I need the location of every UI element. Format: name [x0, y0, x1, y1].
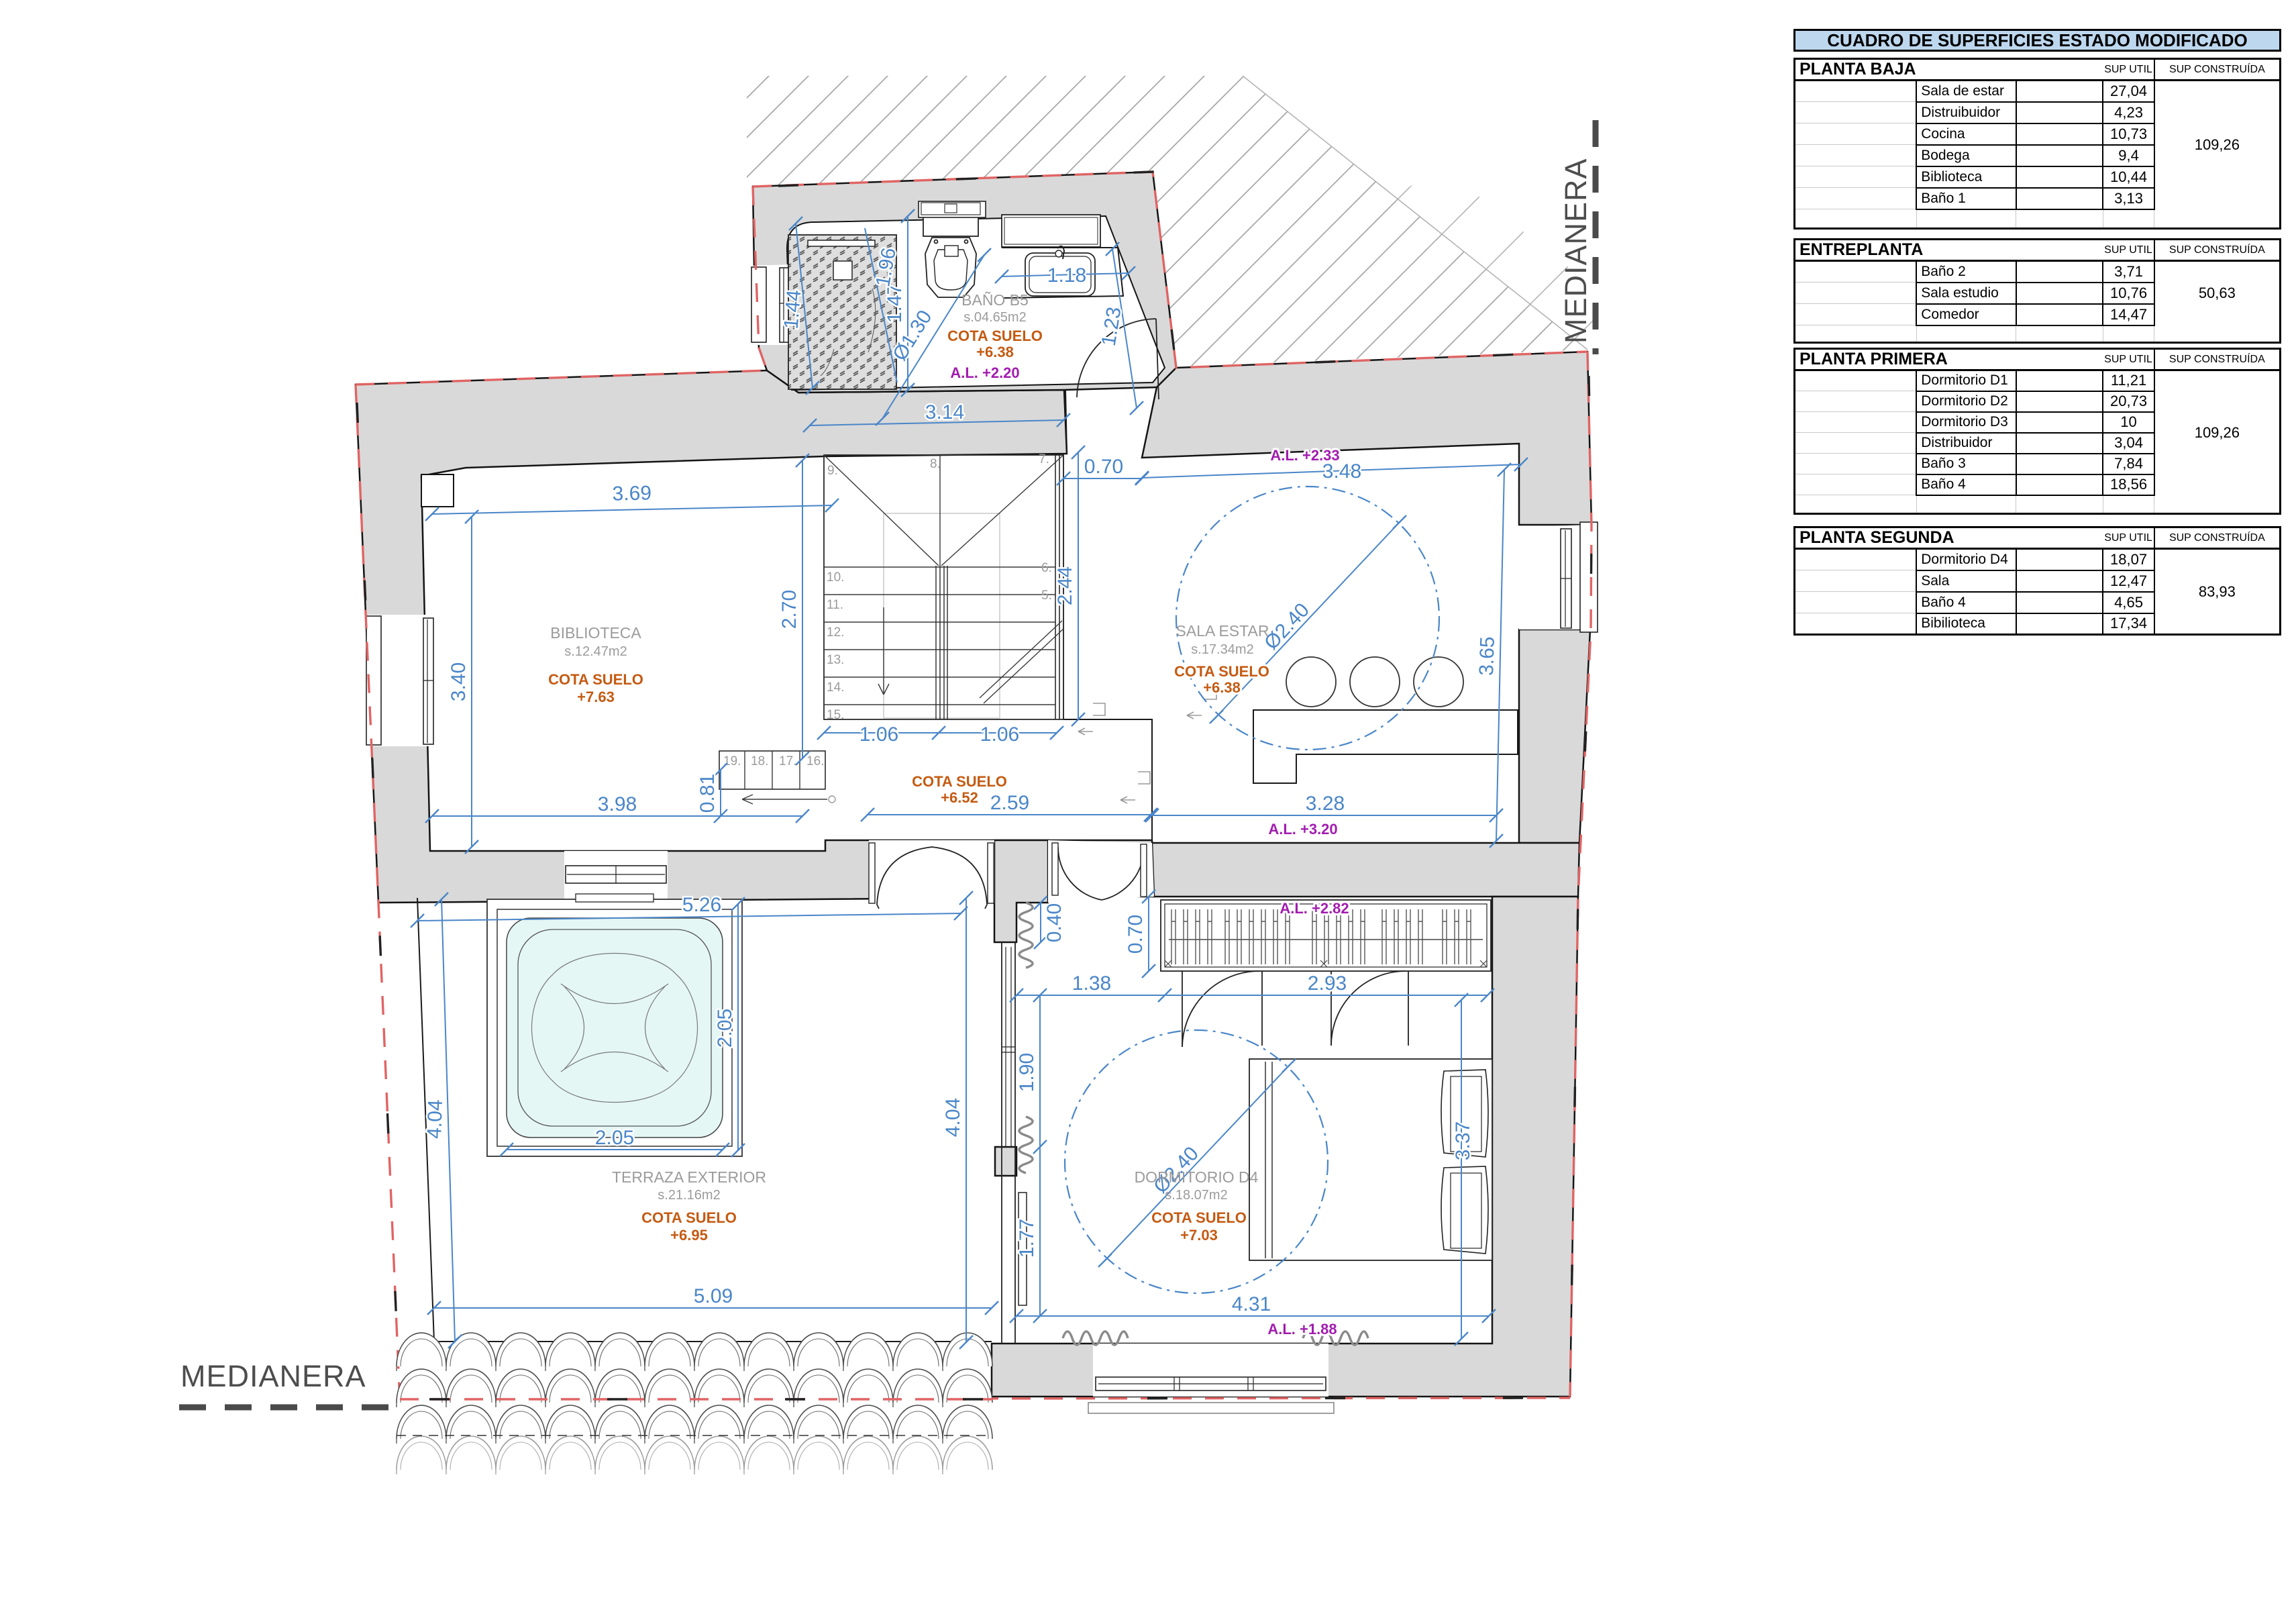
- svg-text:3.37: 3.37: [1452, 1121, 1474, 1160]
- svg-text:0.70: 0.70: [1125, 915, 1147, 954]
- svg-text:2.44: 2.44: [1054, 566, 1076, 605]
- svg-text:s.17.34m2: s.17.34m2: [1191, 642, 1253, 657]
- svg-text:1.47: 1.47: [884, 284, 906, 323]
- svg-text:TERRAZA EXTERIOR: TERRAZA EXTERIOR: [612, 1168, 766, 1186]
- svg-text:3.28: 3.28: [1306, 793, 1345, 815]
- svg-text:1.77: 1.77: [1016, 1219, 1038, 1258]
- svg-text:DORMITORIO D4: DORMITORIO D4: [1135, 1168, 1259, 1186]
- svg-text:0.40: 0.40: [1043, 903, 1065, 942]
- svg-text:4.04: 4.04: [942, 1098, 964, 1137]
- svg-text:0.81: 0.81: [696, 774, 719, 813]
- svg-text:2.59: 2.59: [990, 792, 1029, 814]
- svg-text:1.06: 1.06: [859, 723, 898, 746]
- svg-text:s.12.47m2: s.12.47m2: [564, 644, 627, 659]
- svg-text:1.90: 1.90: [1016, 1053, 1038, 1092]
- svg-text:1.18: 1.18: [1047, 264, 1086, 287]
- svg-text:COTA SUELO: COTA SUELO: [548, 671, 643, 688]
- svg-text:3.69: 3.69: [612, 482, 651, 505]
- svg-text:s.18.07m2: s.18.07m2: [1165, 1188, 1227, 1203]
- svg-text:+6.38: +6.38: [1203, 679, 1241, 696]
- svg-text:18.: 18.: [751, 754, 768, 768]
- svg-text:COTA SUELO: COTA SUELO: [912, 773, 1007, 790]
- svg-text:COTA SUELO: COTA SUELO: [641, 1209, 737, 1226]
- svg-text:13.: 13.: [827, 653, 844, 667]
- svg-text:A.L. +3.20: A.L. +3.20: [1268, 821, 1337, 838]
- svg-text:COTA SUELO: COTA SUELO: [947, 327, 1043, 344]
- svg-text:16.: 16.: [806, 754, 824, 768]
- svg-text:A.L. +2.20: A.L. +2.20: [950, 364, 1019, 381]
- svg-text:4.04: 4.04: [423, 1099, 447, 1140]
- svg-text:8.: 8.: [930, 457, 941, 471]
- svg-text:2.93: 2.93: [1308, 972, 1347, 995]
- svg-text:SALA ESTAR: SALA ESTAR: [1176, 622, 1269, 640]
- svg-text:BAÑO B5: BAÑO B5: [961, 291, 1029, 309]
- svg-text:MEDIANERA: MEDIANERA: [1559, 158, 1593, 344]
- svg-text:9.: 9.: [827, 464, 838, 478]
- svg-text:+6.95: +6.95: [670, 1227, 708, 1244]
- svg-text:2.05: 2.05: [595, 1127, 634, 1149]
- svg-text:s.04.65m2: s.04.65m2: [963, 310, 1026, 325]
- svg-text:7.: 7.: [1039, 452, 1049, 466]
- svg-text:3.40: 3.40: [448, 662, 470, 701]
- svg-text:3.14: 3.14: [925, 401, 964, 423]
- svg-text:17.: 17.: [779, 754, 796, 768]
- svg-text:19.: 19.: [723, 754, 741, 768]
- svg-text:12.: 12.: [827, 625, 844, 640]
- svg-text:+6.52: +6.52: [941, 789, 978, 806]
- svg-text:3.65: 3.65: [1475, 636, 1499, 676]
- svg-text:+7.03: +7.03: [1180, 1227, 1218, 1244]
- svg-text:A.L. +2.82: A.L. +2.82: [1280, 900, 1349, 917]
- svg-text:1.06: 1.06: [980, 723, 1019, 746]
- svg-text:5.26: 5.26: [682, 894, 721, 916]
- svg-text:A.L. +2.33: A.L. +2.33: [1270, 447, 1339, 464]
- svg-text:1.38: 1.38: [1072, 972, 1111, 995]
- svg-text:2.70: 2.70: [778, 590, 800, 629]
- svg-text:4.31: 4.31: [1232, 1293, 1271, 1315]
- svg-text:2.05: 2.05: [714, 1009, 736, 1048]
- svg-text:6.: 6.: [1041, 561, 1052, 575]
- svg-text:COTA SUELO: COTA SUELO: [1174, 663, 1269, 680]
- svg-text:s.21.16m2: s.21.16m2: [658, 1188, 720, 1203]
- svg-text:10.: 10.: [827, 570, 844, 585]
- svg-text:MEDIANERA: MEDIANERA: [180, 1359, 366, 1393]
- svg-text:+6.38: +6.38: [976, 344, 1014, 360]
- svg-text:A.L. +1.88: A.L. +1.88: [1267, 1321, 1337, 1337]
- svg-text:5.09: 5.09: [694, 1285, 733, 1307]
- svg-text:11.: 11.: [827, 598, 843, 612]
- svg-text:3.98: 3.98: [598, 793, 637, 815]
- svg-text:BIBLIOTECA: BIBLIOTECA: [550, 624, 641, 642]
- svg-text:0.70: 0.70: [1084, 456, 1123, 478]
- svg-text:COTA SUELO: COTA SUELO: [1151, 1209, 1247, 1226]
- svg-text:5.: 5.: [1041, 589, 1052, 603]
- svg-text:+7.63: +7.63: [577, 689, 615, 705]
- svg-text:14.: 14.: [827, 680, 844, 695]
- svg-text:15.: 15.: [827, 708, 844, 722]
- svg-text:1.44: 1.44: [780, 289, 806, 330]
